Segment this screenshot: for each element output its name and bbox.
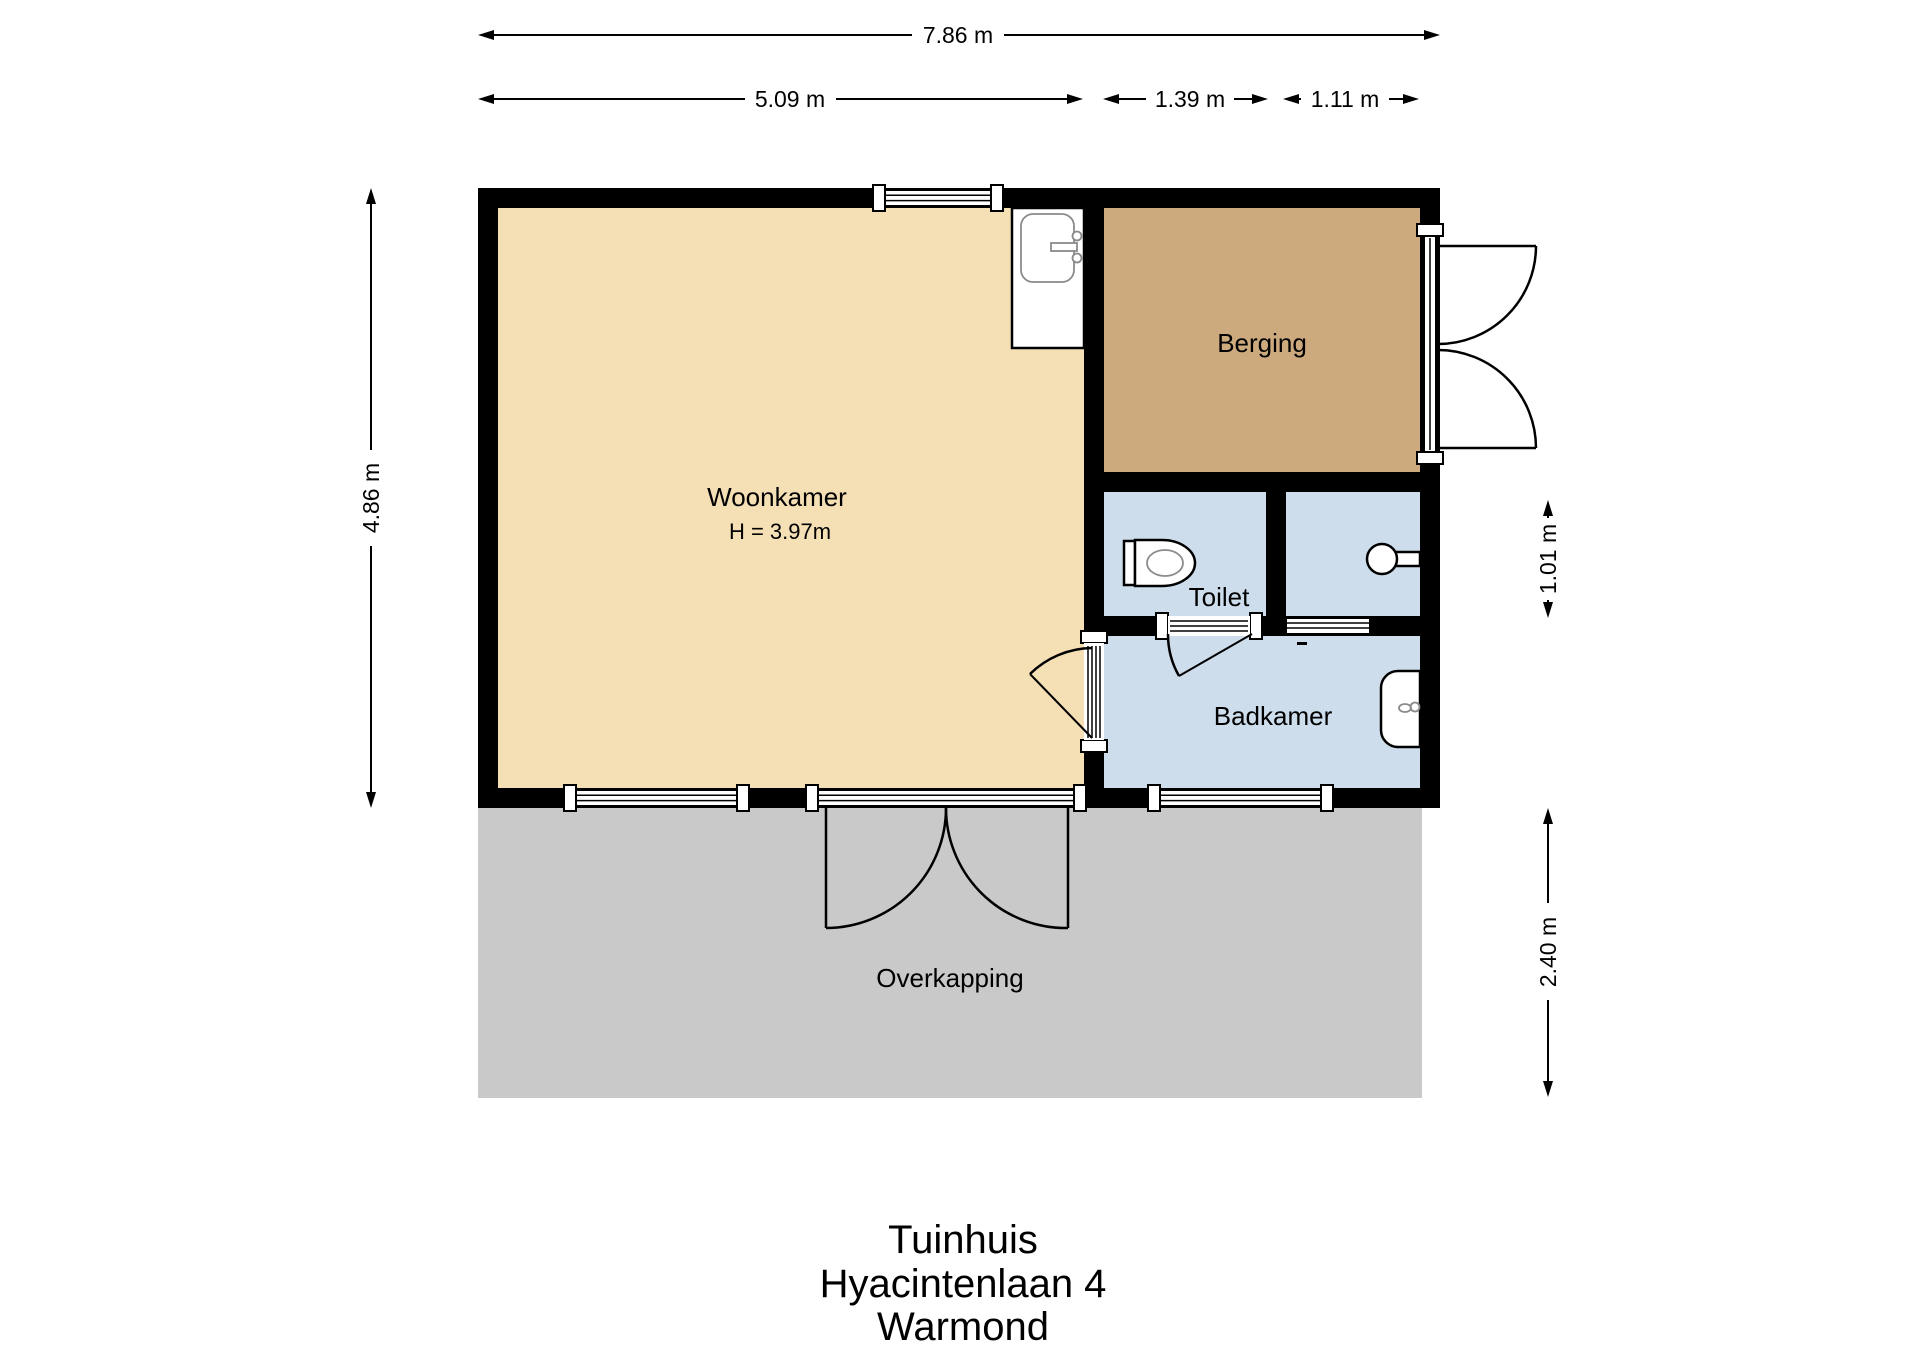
window-jamb: [1148, 785, 1160, 811]
toilet-tank: [1124, 541, 1135, 585]
door-jamb: [1417, 224, 1443, 236]
berging-label: Berging: [1217, 328, 1307, 358]
wall-berging-bottom: [1104, 472, 1420, 492]
toilet-label: Toilet: [1189, 582, 1250, 612]
floor-plan-page: 7.86 m 5.09 m 1.39 m 1.11 m 4.86: [0, 0, 1920, 1358]
dim-toilet-width: 1.39 m: [1103, 86, 1268, 112]
arrow-down-icon: [1543, 602, 1553, 618]
toilet-bowl: [1135, 540, 1195, 586]
shower-head: [1367, 544, 1397, 574]
arrow-up-icon: [1543, 808, 1553, 824]
door-double-berging: [1417, 224, 1536, 464]
dim-woonkamer-width: 5.09 m: [478, 86, 1083, 112]
door-leaf-arc: [1438, 350, 1536, 448]
sink-faucet-knob: [1073, 232, 1082, 241]
dim-overkapping-depth: 2.40 m: [1535, 808, 1561, 1097]
dim-sanitary-height: 1.01 m: [1535, 500, 1561, 618]
door-jamb: [1156, 613, 1168, 639]
window-jamb: [1321, 785, 1333, 811]
dim-label-shower-width: 1.11 m: [1311, 86, 1380, 112]
dim-building-height: 4.86 m: [358, 188, 384, 808]
window-jamb: [564, 785, 576, 811]
window-glass: [576, 790, 737, 806]
arrow-right-icon: [1252, 94, 1268, 104]
arrow-left-icon: [1283, 94, 1299, 104]
dim-total-width: 7.86 m: [478, 22, 1440, 48]
overkapping-area: [478, 808, 1422, 1098]
dim-label-total-width: 7.86 m: [923, 22, 993, 48]
dim-label-overkapping-depth: 2.40 m: [1535, 917, 1561, 987]
door-opening: [1084, 643, 1104, 740]
dim-label-toilet-width: 1.39 m: [1155, 86, 1225, 112]
dim-label-sanitary-height: 1.01 m: [1535, 524, 1561, 594]
arrow-up-icon: [1543, 500, 1553, 516]
arrow-right-icon: [1403, 94, 1419, 104]
door-glass-panel: [818, 790, 1074, 806]
overkapping-label: Overkapping: [876, 963, 1023, 993]
wall-left: [478, 208, 498, 788]
door-leaf-arc: [1438, 246, 1536, 344]
dim-shower-width: 1.11 m: [1283, 86, 1419, 112]
badkamer-label: Badkamer: [1214, 701, 1333, 731]
floor-plan: 7.86 m 5.09 m 1.39 m 1.11 m 4.86: [0, 0, 1920, 1358]
title-city: Warmond: [877, 1305, 1049, 1349]
door-jamb: [1081, 740, 1107, 752]
arrow-up-icon: [366, 188, 376, 204]
arrow-down-icon: [366, 792, 376, 808]
door-jamb: [1074, 785, 1086, 811]
dim-label-building-height: 4.86 m: [358, 463, 384, 533]
window-jamb: [873, 185, 885, 211]
window-jamb: [991, 185, 1003, 211]
title-address: Hyacintenlaan 4: [820, 1262, 1107, 1306]
washbasin-icon: [1381, 671, 1420, 747]
door-jamb: [806, 785, 818, 811]
door-handle-mark: [1297, 642, 1307, 645]
toilet-icon: [1124, 540, 1195, 586]
woonkamer-height-label: H = 3.97m: [729, 519, 831, 544]
arrow-down-icon: [1543, 1081, 1553, 1097]
woonkamer-label: Woonkamer: [707, 482, 847, 512]
sink-faucet-knob: [1073, 254, 1082, 263]
sliding-door-panel: [1286, 618, 1370, 634]
dim-label-woonkamer-width: 5.09 m: [755, 86, 825, 112]
window-glass: [1160, 790, 1321, 806]
kitchen-sink-icon: [1012, 208, 1084, 348]
title-building: Tuinhuis: [888, 1218, 1038, 1262]
wall-toilet-shower-divider: [1266, 492, 1286, 616]
title-block: Tuinhuis Hyacintenlaan 4 Warmond: [820, 1218, 1107, 1349]
washbasin-bowl: [1381, 671, 1420, 747]
door-jamb: [1417, 452, 1443, 464]
window-jamb: [737, 785, 749, 811]
sink-faucet-spout: [1051, 243, 1077, 251]
door-jamb: [1081, 631, 1107, 643]
window-glass: [885, 190, 991, 206]
arrow-left-icon: [1103, 94, 1119, 104]
